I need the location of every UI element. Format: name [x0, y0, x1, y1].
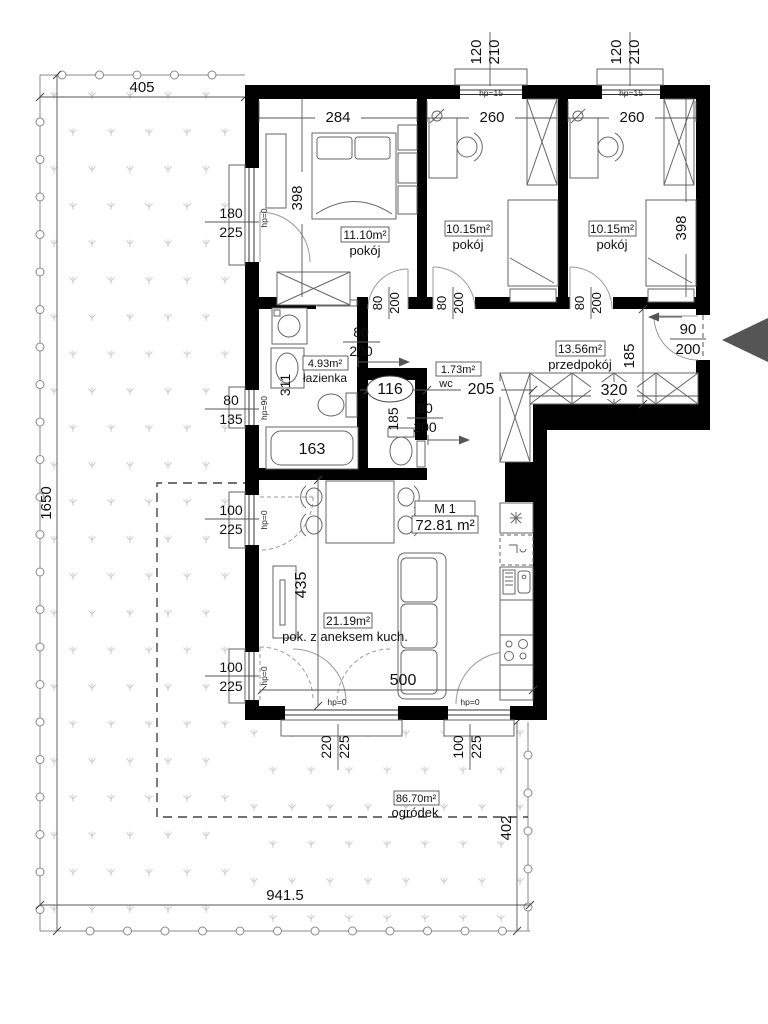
bed-single-room2 [508, 200, 558, 302]
window-label: 225 [219, 224, 243, 240]
washing-machine [272, 308, 307, 344]
window-label: 120 [468, 39, 485, 64]
window-sill [455, 69, 527, 85]
sill-height-label: hp=0 [460, 697, 479, 707]
sill-height-label: hp=15 [619, 88, 643, 98]
dim-bath-depth: 311 [277, 374, 293, 397]
door-label: 80 [417, 400, 433, 416]
garden-area-label: 86.70m² [396, 793, 437, 805]
room3-name: pokój [596, 237, 627, 252]
desk-chair [457, 133, 482, 161]
door-label: 80 [572, 296, 587, 310]
dim-plot-bottom: 941.5 [266, 887, 304, 904]
door-label: 200 [387, 292, 402, 314]
window-sill [229, 492, 245, 548]
bathroom-toilet [318, 393, 357, 417]
stove [500, 635, 533, 665]
window-label: 225 [219, 521, 243, 537]
wardrobe-room2 [527, 99, 557, 185]
sill-height-label: hp=0 [259, 208, 269, 227]
wc-door-slide-arrow-icon [459, 436, 470, 445]
bathroom-name: łazienka [303, 371, 347, 385]
sill-height-label: hp=0 [259, 666, 269, 685]
desk [570, 118, 598, 178]
window-label: 80 [223, 392, 239, 408]
entry-door-slide-arrow-icon [648, 313, 659, 322]
door-label: 200 [413, 419, 437, 435]
window-label: 180 [219, 205, 243, 221]
window-label: 225 [468, 735, 484, 759]
entrance-arrow-icon [722, 318, 768, 362]
dim-hall-width: 205 [468, 381, 495, 398]
window-sill [444, 720, 514, 736]
shelf-unit [398, 186, 417, 214]
window-label: 220 [318, 735, 334, 759]
window-sill [281, 720, 402, 736]
window-label: 225 [336, 735, 352, 759]
wc-door-panel [417, 441, 425, 467]
kitchen-sink [500, 567, 533, 600]
window-label: 210 [626, 39, 643, 64]
dim-living-width: 500 [390, 672, 417, 689]
hall-name: przedpokój [548, 357, 612, 372]
living-name: pok. z aneksem kuch. [282, 629, 408, 644]
apartment-code: M 1 [434, 501, 456, 516]
kitchen-counter [500, 600, 533, 635]
window-label: 100 [450, 735, 466, 759]
dim-tub-length: 163 [299, 441, 326, 458]
window-label: 100 [219, 659, 243, 675]
shelf-unit [398, 153, 417, 183]
wc-name: wc [438, 378, 453, 390]
room2-area: 10.15m² [446, 222, 490, 236]
door-label: 80 [434, 296, 449, 310]
nightstand [398, 125, 417, 150]
bathroom-door-slide-arrow-icon [399, 358, 410, 367]
dim-room2-width: 260 [479, 109, 504, 126]
dim-room3-width: 260 [619, 109, 644, 126]
sill-height-label: hp=0 [327, 697, 346, 707]
entrance-door-label: 200 [675, 341, 700, 358]
apartment-total-area: 72.81 m² [415, 517, 474, 534]
room3-area: 10.15m² [590, 222, 634, 236]
dim-plot-width: 405 [129, 79, 154, 96]
desk [429, 118, 457, 178]
dim-wardrobe-length: 320 [601, 382, 628, 399]
dining-table [301, 481, 420, 543]
dim-garden-depth: 402 [498, 815, 515, 840]
apartment-title: M 1 72.81 m² [412, 501, 478, 534]
wc-toilet [388, 428, 414, 465]
window-label: 135 [219, 411, 243, 427]
dim-hall-depth: 185 [621, 343, 638, 368]
wc-area: 1.73m² [441, 364, 476, 376]
desk-chair [598, 133, 623, 161]
dim-room1-width: 284 [325, 109, 350, 126]
sill-height-label: hp=90 [259, 396, 269, 420]
floor-plan-drawing: 405 1650 941.5 402 [0, 0, 768, 1024]
dim-room1-depth: 398 [289, 185, 306, 210]
bed-double [312, 133, 396, 219]
wardrobe-room3 [664, 99, 694, 185]
dim-room3-depth: 398 [673, 215, 690, 240]
garden-name: ogródek [392, 805, 439, 820]
sill-height-label: hp=0 [259, 510, 269, 529]
room1-name: pokój [349, 243, 380, 258]
dim-living-depth: 435 [293, 572, 310, 599]
dresser [266, 134, 286, 208]
dim-wc-width: 116 [377, 381, 403, 398]
window-label: 120 [608, 39, 625, 64]
sill-height-label: hp=15 [479, 88, 503, 98]
living-area: 21.19m² [326, 614, 370, 628]
furniture [266, 99, 698, 700]
window-label: 210 [486, 39, 503, 64]
window-label: 100 [219, 502, 243, 518]
kitchen-counter [500, 665, 533, 700]
entrance-door-label: 90 [680, 321, 697, 338]
room2-name: pokój [452, 237, 483, 252]
door-label: 200 [349, 343, 373, 359]
door-label: 200 [589, 292, 604, 314]
kitchen-units [500, 503, 533, 700]
door-label: 200 [451, 292, 466, 314]
door-label: 80 [370, 296, 385, 310]
bathroom-area: 4.93m² [308, 358, 343, 370]
wardrobe-room1 [277, 272, 350, 305]
dim-plot-height: 1650 [38, 486, 55, 519]
hall-area: 13.56m² [558, 342, 602, 356]
room1-area: 11.10m² [343, 228, 386, 242]
door-label: 80 [353, 324, 369, 340]
floor-plan-page: 405 1650 941.5 402 [0, 0, 768, 1024]
dim-wc-depth: 185 [385, 407, 401, 431]
window-label: 225 [219, 678, 243, 694]
